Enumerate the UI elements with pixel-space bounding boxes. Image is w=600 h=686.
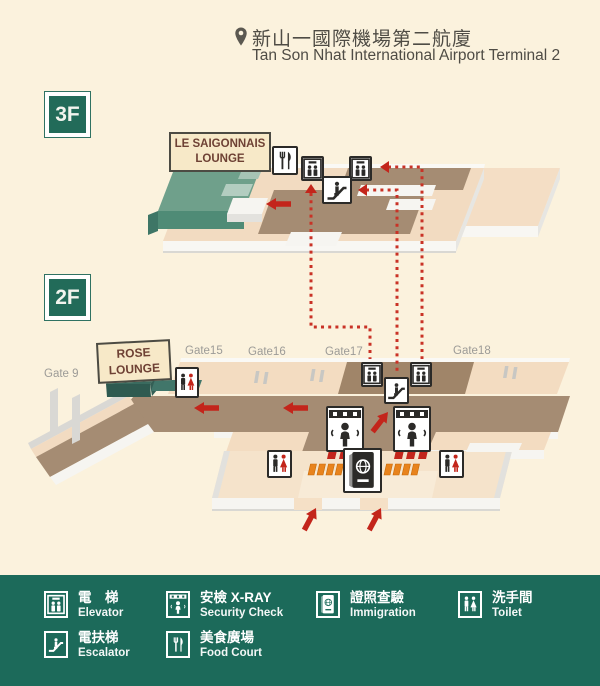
lounge-le-saigonnais-line2: LOUNGE (171, 152, 269, 167)
legend-item-immigration: 證照查驗 Immigration (316, 591, 416, 619)
food-court-icon (166, 631, 190, 658)
location-pin-icon (234, 26, 248, 46)
legend-security-en: Security Check (200, 608, 283, 620)
legend-item-elevator: 電 梯 Elevator (44, 591, 123, 619)
legend-item-foodcourt: 美食廣場 Food Court (166, 631, 262, 659)
toilet-icon (439, 450, 464, 478)
floor-badge-3f-label: 3F (49, 96, 86, 133)
legend-item-escalator: 電扶梯 Escalator (44, 631, 130, 659)
legend-toilet-en: Toilet (492, 608, 533, 620)
elevator-icon (410, 362, 432, 387)
toilet-icon (175, 367, 199, 398)
escalator-icon (322, 176, 352, 204)
page-title-en: Tan Son Nhat International Airport Termi… (252, 47, 560, 65)
legend-immigration-en: Immigration (350, 608, 416, 620)
lounge-label-le-saigonnais: LE SAIGONNAIS LOUNGE (169, 132, 271, 172)
legend-item-security: 安檢 X-RAY Security Check (166, 591, 283, 619)
legend-bar: 電 梯 Elevator 安檢 X-RAY Security Check 證照查… (0, 575, 600, 686)
elevator-icon (349, 156, 372, 181)
legend-escalator-zh: 電扶梯 (78, 631, 130, 645)
legend-security-zh: 安檢 X-RAY (200, 591, 283, 605)
escalator-icon (44, 631, 68, 658)
legend-foodcourt-zh: 美食廣場 (200, 631, 262, 645)
elevator-icon (44, 591, 68, 618)
security-check-icon (326, 406, 364, 452)
gate-label-16: Gate16 (248, 346, 286, 358)
elevator-icon (361, 362, 383, 387)
floor-badge-2f-label: 2F (49, 279, 86, 316)
floor-badge-2f: 2F (44, 274, 91, 321)
legend-foodcourt-en: Food Court (200, 648, 262, 660)
gate-label-17: Gate17 (325, 346, 363, 358)
immigration-icon (316, 591, 340, 618)
legend-escalator-en: Escalator (78, 648, 130, 660)
legend-elevator-zh: 電 梯 (78, 591, 123, 605)
security-check-icon (393, 406, 431, 452)
lounge-label-rose: ROSE LOUNGE (96, 339, 172, 384)
legend-immigration-zh: 證照查驗 (350, 591, 416, 605)
elevator-icon (301, 156, 324, 181)
floor-badge-3f: 3F (44, 91, 91, 138)
immigration-icon (343, 448, 382, 493)
toilet-icon (458, 591, 482, 618)
gate-label-15: Gate15 (185, 345, 223, 357)
gate-label-18: Gate18 (453, 345, 491, 357)
legend-toilet-zh: 洗手間 (492, 591, 533, 605)
legend-elevator-en: Elevator (78, 608, 123, 620)
map-2f (28, 358, 570, 533)
gate-label-9: Gate 9 (44, 368, 79, 380)
food-court-icon (272, 146, 298, 175)
security-check-icon (166, 591, 190, 618)
legend-item-toilet: 洗手間 Toilet (458, 591, 533, 619)
lounge-rose-line2: LOUNGE (99, 360, 170, 379)
escalator-icon (384, 377, 409, 404)
toilet-icon (267, 450, 292, 478)
airport-terminal-map-page: 新山一國際機場第二航廈 Tan Son Nhat International A… (0, 0, 600, 686)
lounge-le-saigonnais-line1: LE SAIGONNAIS (171, 137, 269, 152)
